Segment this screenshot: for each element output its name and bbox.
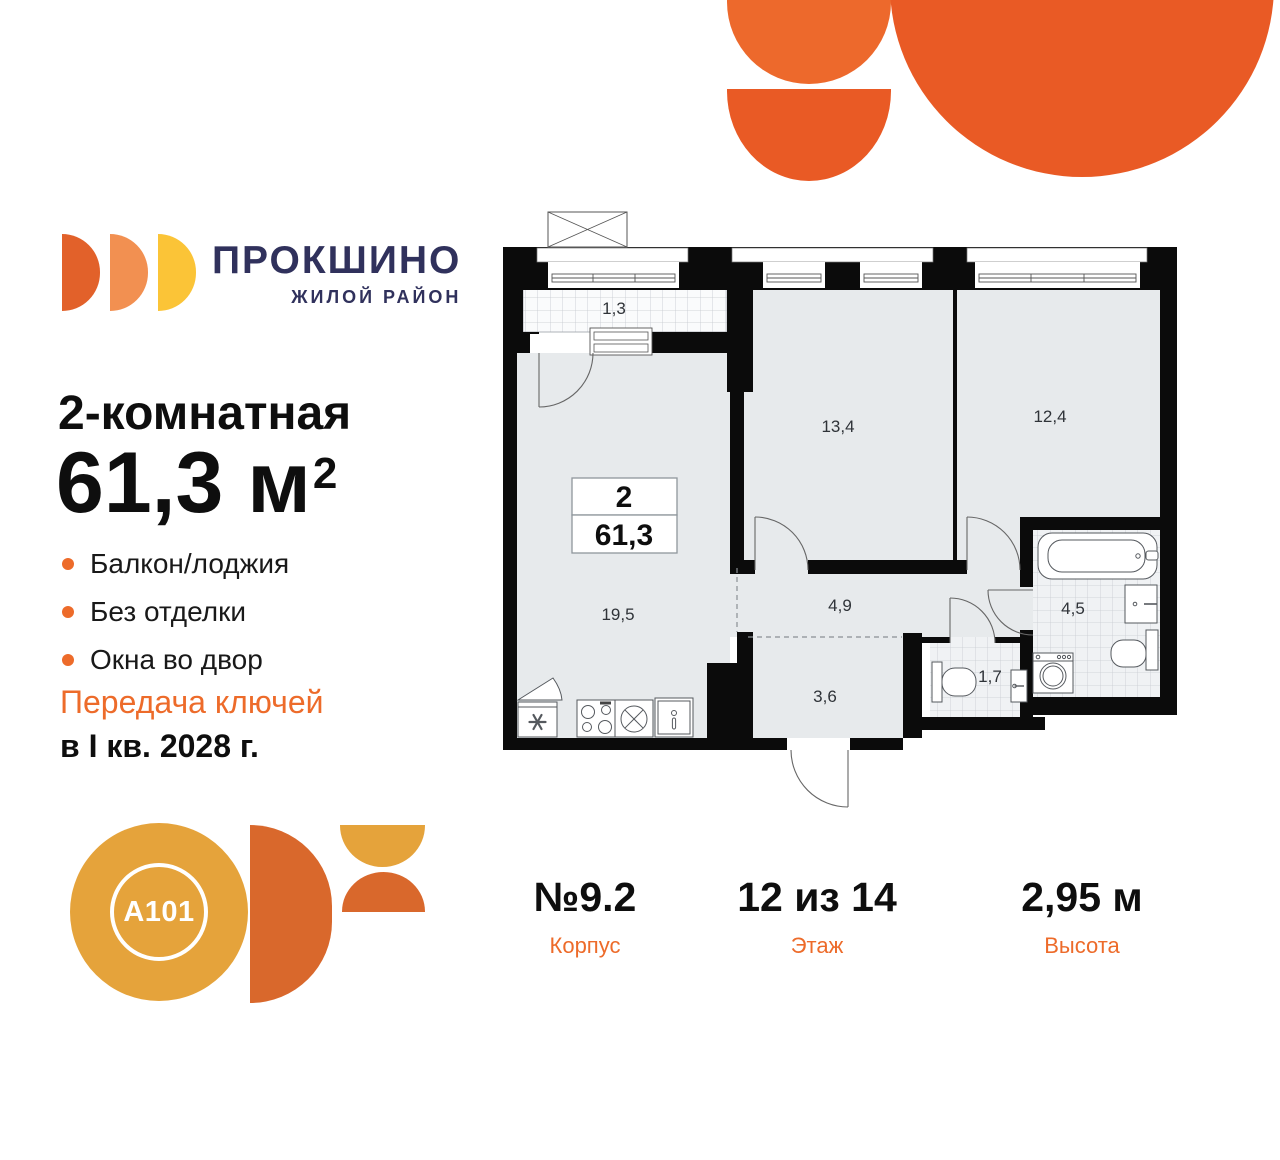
room-label-bathroom: 4,5 — [1061, 599, 1085, 618]
developer-name: A101 — [110, 863, 208, 961]
feature-label: Балкон/лоджия — [90, 548, 289, 580]
plan-info-box: 2 61,3 — [572, 478, 677, 553]
kitchen-sink-icon — [615, 700, 653, 737]
bathtub-icon — [1038, 533, 1158, 579]
developer-logo-circle: A101 — [70, 823, 248, 1001]
brand-logo: ПРОКШИНО ЖИЛОЙ РАЙОН — [62, 232, 461, 311]
decorative-semicircle-small-bottom — [727, 89, 891, 181]
room-label-living: 19,5 — [601, 605, 634, 624]
brand-tagline: ЖИЛОЙ РАЙОН — [291, 287, 461, 308]
apartment-type-title: 2-комнатная — [58, 386, 351, 441]
bullet-dot-icon — [62, 558, 74, 570]
stat-ceiling-label: Высота — [972, 933, 1192, 959]
logo-halfdisc-icon — [62, 234, 100, 311]
room-label-balcony: 1,3 — [602, 299, 626, 318]
decorative-circle-large — [890, 0, 1274, 177]
logo-halfdisc-icon — [110, 234, 148, 311]
developer-logo-bowl — [340, 825, 425, 867]
stat-building: №9.2 Корпус — [475, 874, 695, 959]
info-box-area: 61,3 — [595, 519, 653, 552]
handover-date: в I кв. 2028 г. — [60, 728, 259, 765]
room-label-hallway: 4,9 — [828, 596, 852, 615]
feature-item: Без отделки — [62, 596, 289, 628]
feature-item: Окна во двор — [62, 644, 289, 676]
area-unit: м — [247, 435, 311, 531]
room-label-bedroom2: 12,4 — [1033, 407, 1066, 426]
bathroom-sink-icon — [1125, 585, 1157, 623]
wc-sink-icon — [1011, 670, 1027, 702]
feature-list: Балкон/лоджия Без отделки Окна во двор — [62, 548, 289, 692]
developer-logo: A101 — [70, 823, 500, 1008]
stat-floor-label: Этаж — [707, 933, 927, 959]
decorative-semicircle-small-top — [727, 0, 891, 84]
info-box-rooms: 2 — [616, 481, 633, 514]
stat-floor-value: 12 из 14 — [707, 874, 927, 921]
brand-logo-icon — [62, 234, 212, 311]
area-exponent: 2 — [313, 449, 337, 498]
room-label-entry: 3,6 — [813, 687, 837, 706]
stat-floor: 12 из 14 Этаж — [707, 874, 927, 959]
fridge-icon — [518, 702, 557, 737]
bullet-dot-icon — [62, 606, 74, 618]
stove-icon — [577, 700, 615, 737]
shaft-box — [548, 212, 627, 247]
developer-logo-cap — [342, 872, 425, 912]
stat-ceiling: 2,95 м Высота — [972, 874, 1192, 959]
apartment-area: 61,3 м2 — [56, 438, 337, 528]
stat-building-label: Корпус — [475, 933, 695, 959]
feature-label: Окна во двор — [90, 644, 263, 676]
listing-card: ПРОКШИНО ЖИЛОЙ РАЙОН 2-комнатная 61,3 м2… — [0, 0, 1280, 1160]
room-label-bedroom1: 13,4 — [821, 417, 854, 436]
brand-name: ПРОКШИНО — [212, 240, 461, 283]
sink-cabinet-icon — [655, 698, 693, 737]
feature-label: Без отделки — [90, 596, 246, 628]
feature-item: Балкон/лоджия — [62, 548, 289, 580]
floor-plan: 2 61,3 1,3 13,4 12,4 19,5 4,9 3,6 1,7 4,… — [500, 210, 1180, 810]
washing-machine-icon — [1033, 653, 1073, 693]
logo-halfdisc-icon — [158, 234, 196, 311]
room-label-wc: 1,7 — [978, 667, 1002, 686]
bullet-dot-icon — [62, 654, 74, 666]
developer-logo-halfdisc — [250, 825, 332, 1003]
stat-building-value: №9.2 — [475, 874, 695, 921]
stat-ceiling-value: 2,95 м — [972, 874, 1192, 921]
handover-title: Передача ключей — [60, 684, 323, 721]
area-value: 61,3 — [56, 435, 223, 531]
